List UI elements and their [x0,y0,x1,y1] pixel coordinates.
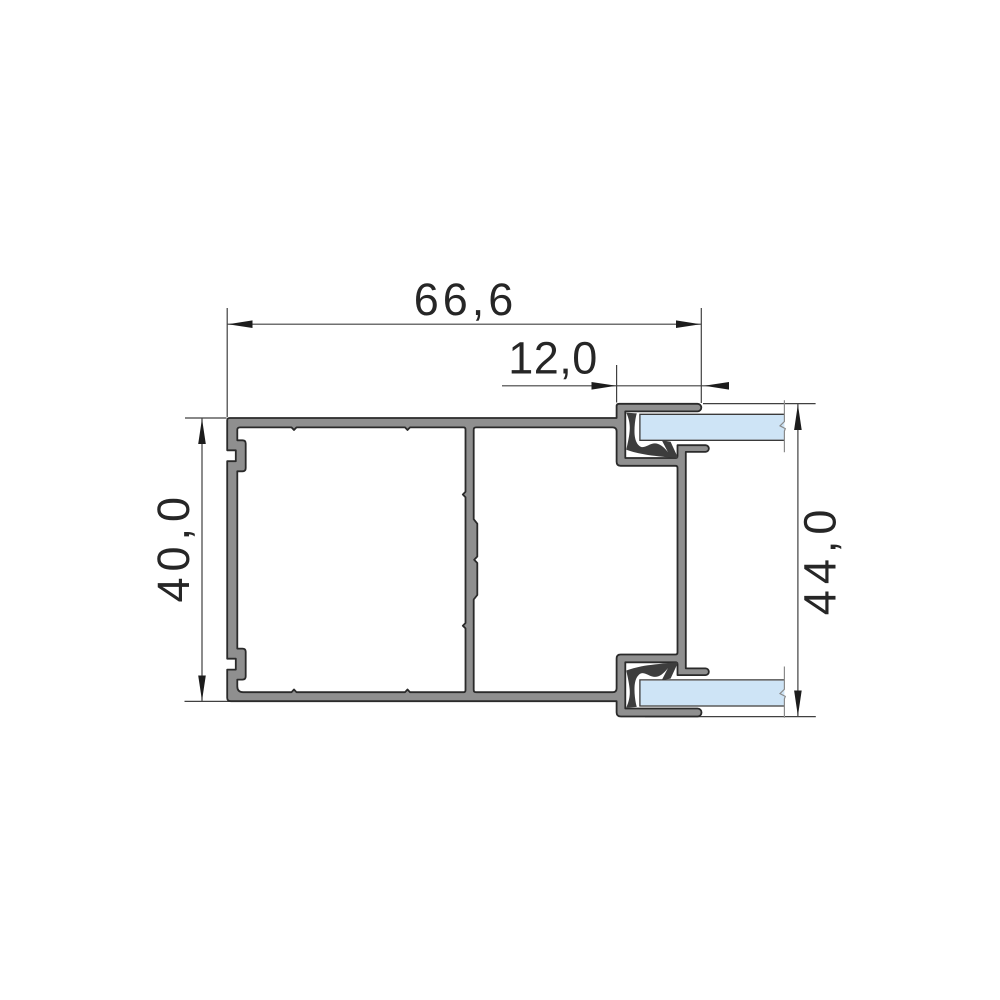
svg-text:12,0: 12,0 [508,333,598,384]
svg-text:44,0: 44,0 [795,504,846,616]
svg-text:40,0: 40,0 [148,491,199,603]
svg-text:66,6: 66,6 [414,274,518,325]
